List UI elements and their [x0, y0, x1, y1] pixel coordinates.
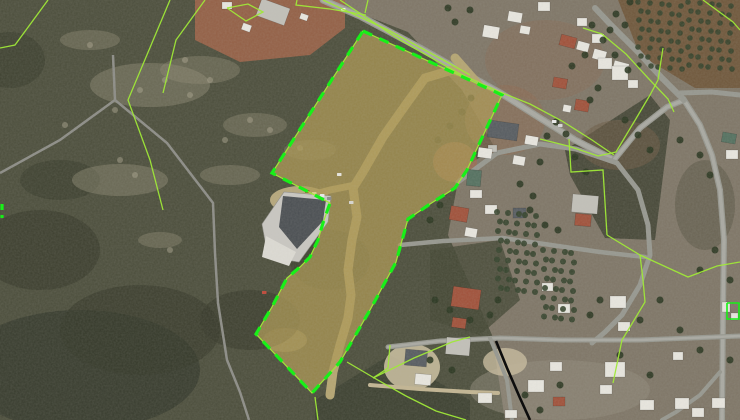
- map-canvas: [0, 0, 740, 420]
- satellite-grain: [0, 0, 740, 420]
- satellite-map[interactable]: [0, 0, 740, 420]
